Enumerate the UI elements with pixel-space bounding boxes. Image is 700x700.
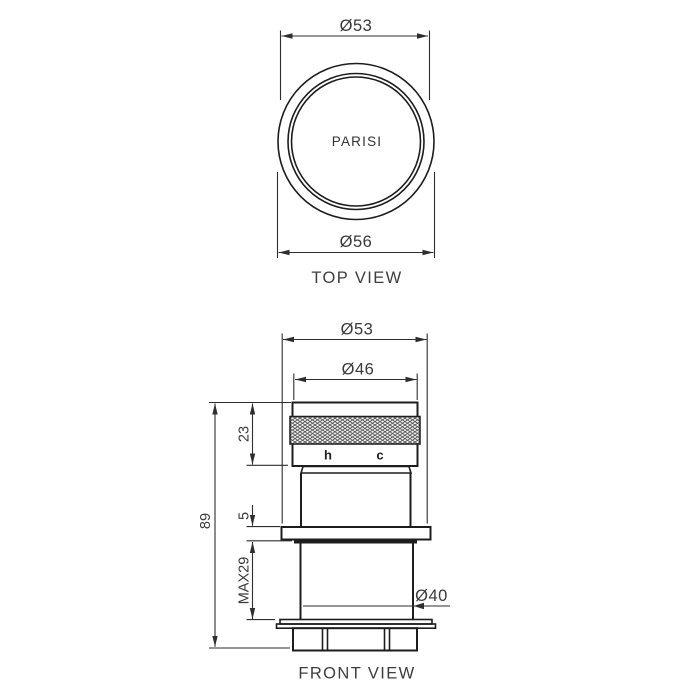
hot-indicator: h [324,448,332,463]
top-view-dim-53-label: Ø53 [340,17,373,35]
top-view: Ø53 PARISI Ø56 TOP VIEW [278,17,435,287]
dim-23-label: 23 [237,426,253,442]
knurl-band [290,417,420,445]
dim-max29-label: MAX29 [237,557,253,605]
cold-indicator: c [376,448,383,463]
dim-5-label: 5 [237,512,253,520]
top-view-title: TOP VIEW [311,269,402,287]
flange-lip [294,540,417,544]
front-view-title: FRONT VIEW [298,665,415,683]
mounting-nut [293,628,417,650]
flange [282,527,431,540]
technical-drawing: Ø53 PARISI Ø56 TOP VIEW Ø53 Ø46 h c [0,0,700,700]
front-dim-46-label: Ø46 [342,361,375,379]
dim-89-label: 89 [198,513,214,529]
neck-taper [301,467,411,474]
front-dim-53-label: Ø53 [341,321,374,339]
top-view-dim-56-label: Ø56 [340,233,373,251]
brand-text: PARISI [332,134,382,149]
front-dim-40-label: Ø40 [415,587,448,605]
front-view: Ø53 Ø46 h c Ø40 [198,321,450,683]
